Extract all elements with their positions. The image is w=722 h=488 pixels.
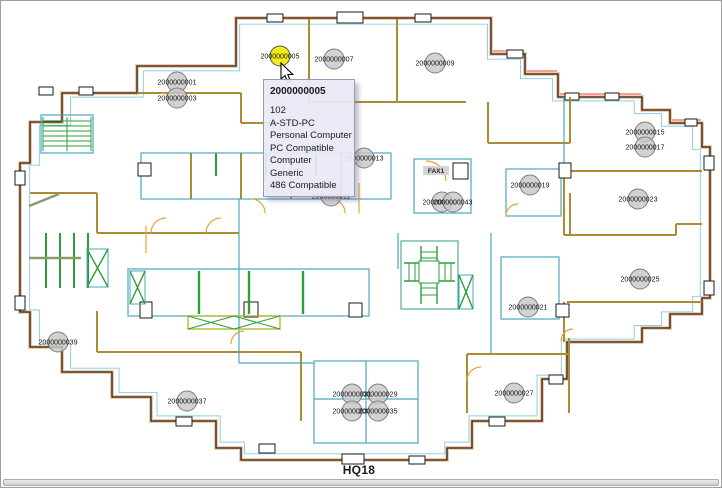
asset-marker-label: 2000000031: [333, 392, 372, 399]
tooltip-line: Computer: [270, 155, 349, 168]
asset-marker-label: 2000000027: [495, 391, 534, 398]
asset-tooltip: 2000000005 102A-STD-PCPersonal ComputerP…: [263, 79, 355, 197]
tooltip-line: 486 Compatible: [270, 180, 349, 193]
asset-marker-label: 2000000005: [261, 54, 300, 61]
svg-text:FAX1: FAX1: [428, 168, 445, 175]
asset-marker-label: 2000000039: [39, 340, 78, 347]
asset-marker-label: 2000000007: [315, 57, 354, 64]
asset-marker-label: 2000000009: [416, 61, 455, 68]
asset-marker-label: 2000000037: [168, 399, 207, 406]
tooltip-line: PC Compatible: [270, 143, 349, 156]
tooltip-line: 102: [270, 105, 349, 118]
asset-marker-label: 2000000035: [359, 409, 398, 416]
equipment-label: FAX1: [423, 166, 449, 175]
asset-marker-label: 2000000015: [626, 130, 665, 137]
asset-marker-label: 2000000023: [619, 197, 658, 204]
floorplan-viewer: FAX1 20000000012000000003200000000520000…: [0, 0, 722, 488]
tooltip-line: Generic: [270, 168, 349, 181]
asset-marker-label: 2000000001: [158, 80, 197, 87]
tooltip-line: Personal Computer: [270, 130, 349, 143]
asset-marker-label: 2000000019: [511, 183, 550, 190]
asset-marker-label: 2000000043: [434, 200, 473, 207]
tooltip-line: A-STD-PC: [270, 118, 349, 131]
tooltip-asset-id: 2000000005: [270, 86, 349, 97]
asset-marker-label: 2000000025: [621, 277, 660, 284]
tooltip-details: 102A-STD-PCPersonal ComputerPC Compatibl…: [270, 105, 349, 193]
bottom-scrollbar[interactable]: [3, 479, 719, 486]
floorplan-canvas: FAX1 20000000012000000003200000000520000…: [1, 1, 721, 483]
asset-marker-label: 2000000017: [626, 145, 665, 152]
equipment-labels-layer: FAX1: [423, 166, 449, 175]
asset-marker-label: 2000000021: [509, 305, 548, 312]
floor-label: HQ18: [319, 463, 399, 477]
asset-marker-label: 2000000003: [158, 96, 197, 103]
